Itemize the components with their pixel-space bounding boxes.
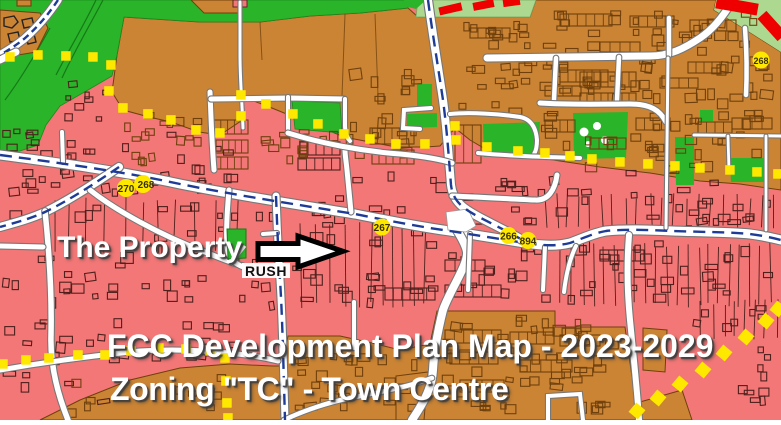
svg-text:266: 266 — [500, 232, 517, 243]
svg-text:267: 267 — [374, 223, 391, 234]
svg-text:RUSH: RUSH — [245, 263, 287, 279]
svg-text:268: 268 — [138, 180, 155, 191]
svg-text:894: 894 — [520, 237, 537, 248]
svg-text:270: 270 — [118, 184, 135, 195]
svg-text:268: 268 — [753, 56, 768, 66]
